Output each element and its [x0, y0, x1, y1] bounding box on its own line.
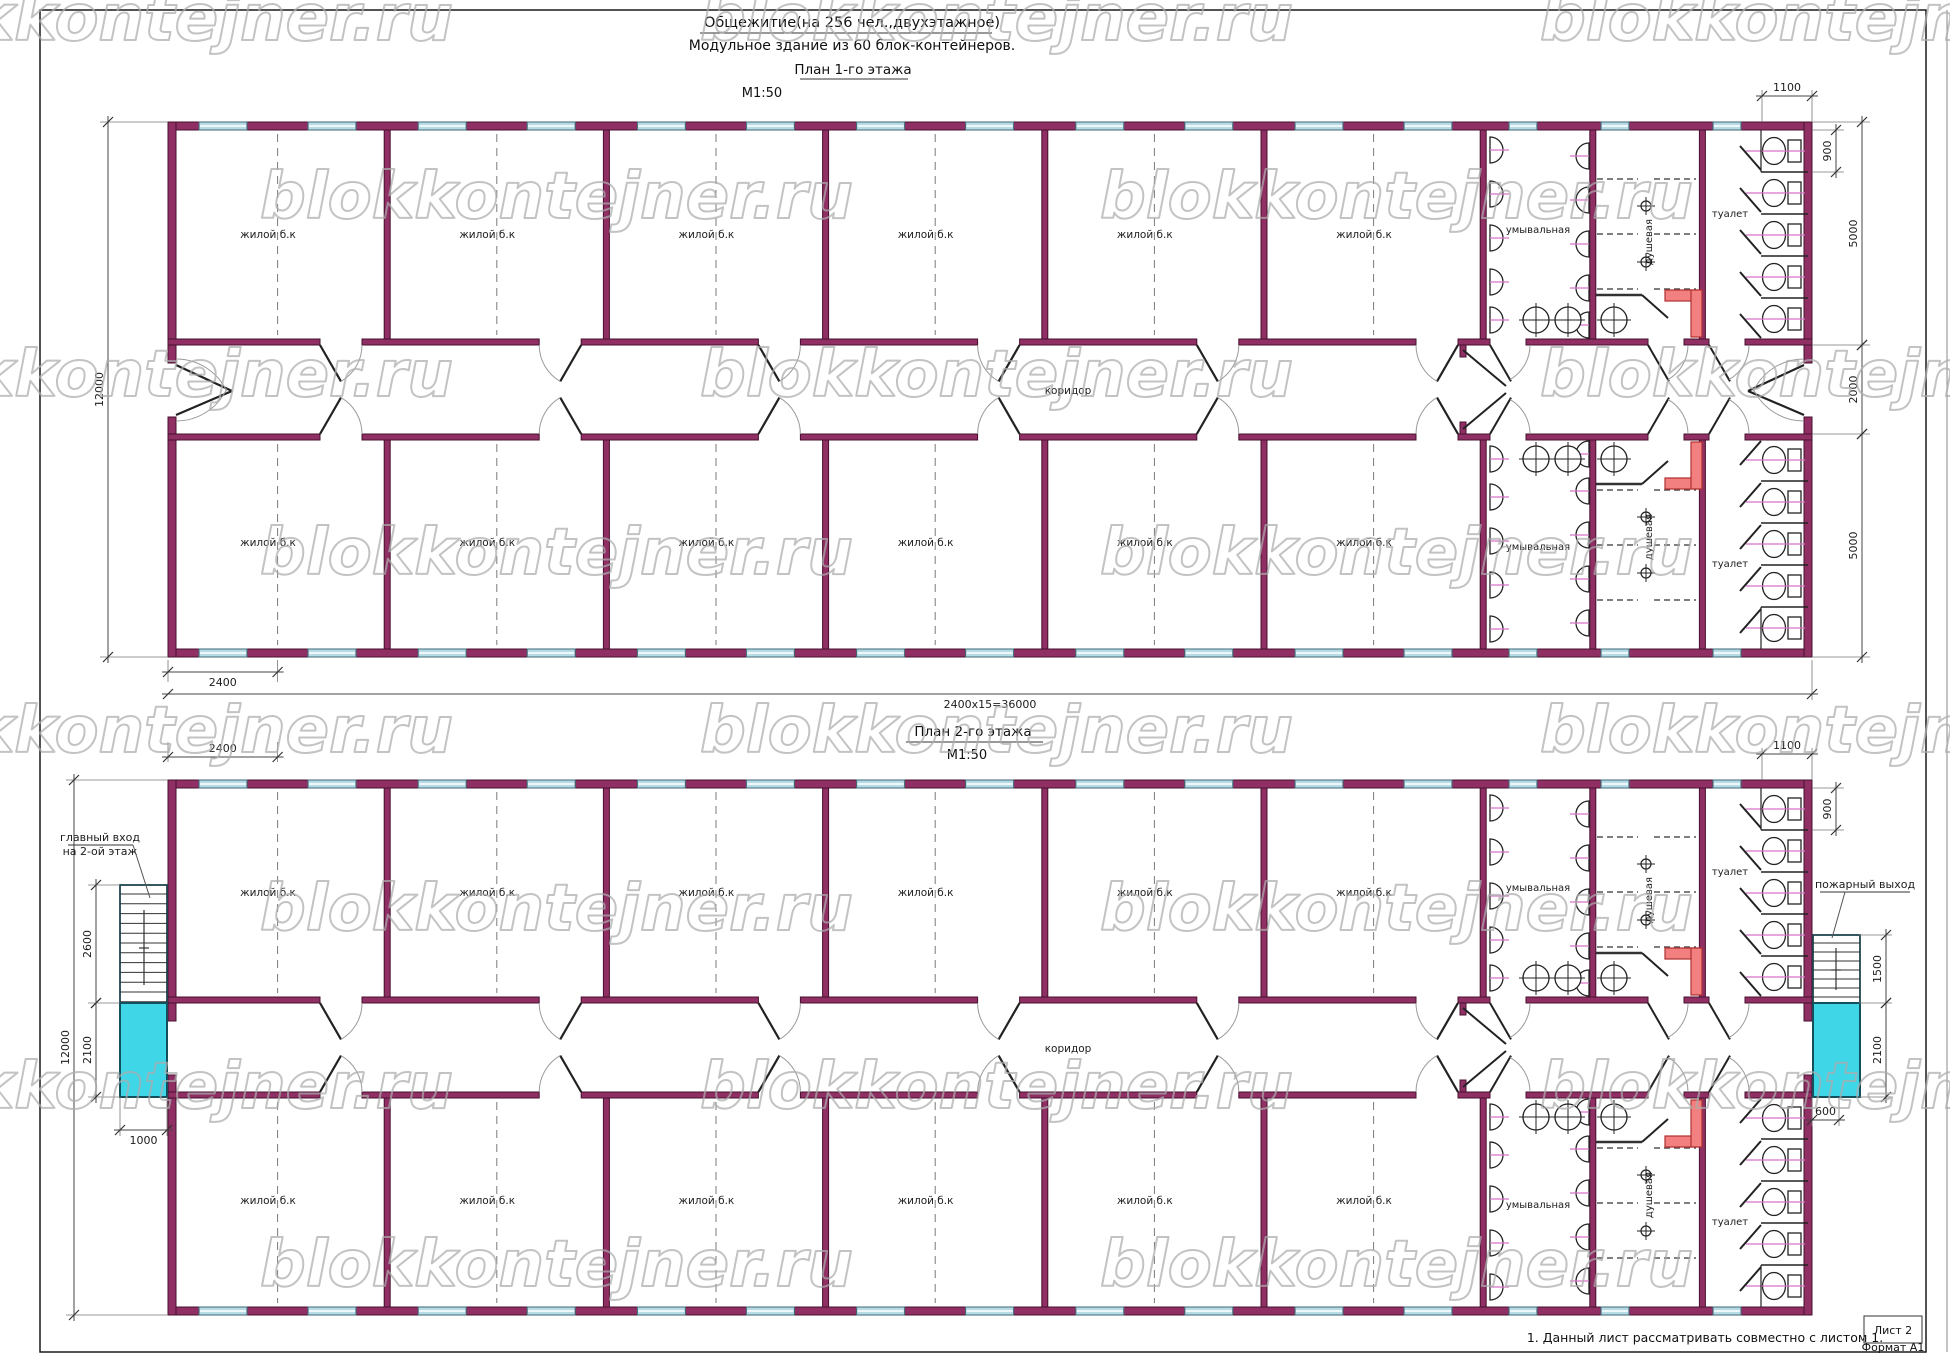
door-leaf: [1197, 1003, 1218, 1039]
door-arc: [539, 398, 560, 434]
room-label: жилой б.к: [679, 1195, 735, 1207]
plan1-title: План 1-го этажа: [794, 62, 911, 78]
fire-exit-label: пожарный выход: [1815, 878, 1915, 891]
door-leaf: [758, 1003, 779, 1039]
corridor-wall: [1684, 434, 1709, 440]
room-partition-wall: [1042, 788, 1048, 997]
room-label: жилой б.к: [1117, 1195, 1173, 1207]
door-arc: [1729, 1003, 1749, 1038]
door-arc: [1416, 345, 1437, 381]
corridor-wall: [1458, 434, 1490, 440]
room-partition-wall: [1042, 130, 1048, 339]
corridor-wall: [1020, 434, 1197, 440]
door-leaf: [1642, 461, 1668, 484]
shower-label: душевая: [1644, 1172, 1655, 1218]
exterior-wall-right: [1804, 780, 1812, 1021]
room-label: жилой б.к: [1336, 1195, 1392, 1207]
stall-door-leaf: [1740, 230, 1761, 254]
door-arc: [539, 1056, 560, 1092]
corridor-wall: [1526, 997, 1648, 1003]
leader-line: [1832, 892, 1845, 938]
stall-door-leaf: [1740, 525, 1761, 549]
watermark-text: blokkontejner.ru: [1100, 872, 1693, 946]
door-leaf: [1709, 1003, 1730, 1039]
watermark-text: blokkontejner.ru: [1540, 338, 1950, 412]
stall-door-leaf: [1740, 314, 1761, 338]
watermark-text: blokkontejner.ru: [260, 872, 853, 946]
door-leaf: [1463, 1008, 1506, 1044]
watermark-text: blokkontejner.ru: [1100, 516, 1693, 590]
stall-door-leaf: [1740, 483, 1761, 507]
corridor-wall: [1684, 997, 1709, 1003]
corridor-wall: [800, 434, 977, 440]
watermark-text: blokkontejner.ru: [260, 160, 853, 234]
door-arc: [779, 1003, 800, 1039]
room-label: жилой б.к: [898, 1195, 954, 1207]
door-arc: [1416, 1056, 1437, 1092]
stall-door-leaf: [1740, 609, 1761, 633]
stall-door-leaf: [1740, 804, 1761, 828]
main-entrance-label: главный вход: [60, 831, 140, 844]
corridor-wall: [1745, 997, 1812, 1003]
room-partition-wall: [1042, 440, 1048, 649]
corridor-wall: [1458, 339, 1490, 345]
corridor-wall: [168, 434, 320, 440]
door-arc: [1668, 1003, 1688, 1038]
corridor-wall: [1458, 997, 1490, 1003]
corridor-wall: [800, 997, 977, 1003]
door-leaf: [1463, 1051, 1506, 1087]
watermark-text: blokkontejner.ru: [700, 338, 1293, 412]
watermark-text: blokkontejner.ru: [0, 1050, 453, 1124]
door-leaf: [560, 398, 581, 434]
dimension-label: 900: [1821, 799, 1834, 820]
watermark-text: blokkontejner.ru: [260, 1228, 853, 1302]
exterior-wall-left: [168, 417, 176, 657]
door-leaf: [560, 345, 581, 381]
watermark-text: blokkontejner.ru: [700, 1050, 1293, 1124]
watermark-text: blokkontejner.ru: [1540, 694, 1950, 768]
door-arc: [341, 1003, 362, 1039]
stall-door-leaf: [1740, 567, 1761, 591]
stall-door-leaf: [1740, 888, 1761, 912]
watermark-text: blokkontejner.ru: [260, 516, 853, 590]
exterior-wall-right: [1804, 417, 1812, 657]
door-leaf: [1463, 350, 1506, 386]
toilet-label: туалет: [1712, 559, 1748, 570]
sheet-format: Формат А1: [1862, 1341, 1925, 1354]
dimension-label: 2600: [81, 930, 94, 958]
door-arc: [1416, 1003, 1437, 1039]
room-label: жилой б.к: [898, 537, 954, 549]
stall-door-leaf: [1740, 1141, 1761, 1165]
room-label: жилой б.к: [898, 229, 954, 241]
door-leaf: [320, 1003, 341, 1039]
door-arc: [1510, 399, 1530, 434]
watermark-text: blokkontejner.ru: [1540, 0, 1950, 56]
door-arc: [1218, 1003, 1239, 1039]
dimension-label: 900: [1821, 141, 1834, 162]
door-leaf: [999, 1003, 1020, 1039]
exterior-wall-left: [168, 122, 176, 363]
stall-door-leaf: [1740, 146, 1761, 170]
room-label: жилой б.к: [898, 887, 954, 899]
watermark-text: blokkontejner.ru: [0, 694, 453, 768]
door-leaf: [1437, 345, 1458, 381]
room-label: жилой б.к: [459, 1195, 515, 1207]
corridor-wall: [1239, 997, 1416, 1003]
watermark-text: blokkontejner.ru: [700, 0, 1293, 56]
corridor-wall: [1745, 434, 1812, 440]
sheet-note: 1. Данный лист рассматривать совместно с…: [1527, 1330, 1883, 1345]
sheet-number: Лист 2: [1874, 1324, 1912, 1337]
watermark-text: blokkontejner.ru: [1540, 1050, 1950, 1124]
room-partition-wall: [1042, 1098, 1048, 1307]
door-leaf: [1463, 393, 1506, 429]
stall-door-leaf: [1740, 441, 1761, 465]
door-arc: [978, 1003, 999, 1039]
red-wall-panel: [1691, 948, 1702, 995]
washroom-label: умывальная: [1506, 1200, 1570, 1211]
red-wall-panel: [1691, 442, 1702, 489]
door-leaf: [1642, 953, 1668, 976]
watermark-text: blokkontejner.ru: [700, 694, 1293, 768]
dimension-label: 1100: [1773, 81, 1801, 94]
stall-door-leaf: [1740, 1183, 1761, 1207]
corridor-wall: [362, 434, 539, 440]
exterior-wall-left: [168, 780, 176, 1021]
corridor-wall: [1239, 434, 1416, 440]
stall-door-leaf: [1740, 930, 1761, 954]
stall-door-leaf: [1740, 1267, 1761, 1291]
corridor-wall: [362, 997, 539, 1003]
door-leaf: [1642, 295, 1668, 318]
stall-door-leaf: [1740, 1225, 1761, 1249]
exterior-wall-right: [1804, 122, 1812, 363]
main-entrance-label: на 2-ой этаж: [63, 845, 138, 858]
toilet-label: туалет: [1712, 209, 1748, 220]
corridor-wall: [1020, 997, 1197, 1003]
door-leaf: [1437, 1056, 1458, 1092]
door-arc: [1416, 398, 1437, 434]
plan1-scale: М1:50: [742, 86, 782, 101]
corridor-wall: [581, 997, 758, 1003]
corridor-wall: [1458, 1092, 1490, 1098]
door-arc: [539, 345, 560, 381]
watermark-text: blokkontejner.ru: [1100, 160, 1693, 234]
stall-door-leaf: [1740, 972, 1761, 996]
toilet-label: туалет: [1712, 867, 1748, 878]
stall-door-leaf: [1740, 272, 1761, 296]
red-wall-panel: [1691, 290, 1702, 337]
dimension-label: 5000: [1847, 532, 1860, 560]
watermark-text: blokkontejner.ru: [0, 338, 453, 412]
dimension-label: 5000: [1847, 220, 1860, 248]
door-leaf: [1648, 1003, 1669, 1039]
corridor-wall: [168, 997, 320, 1003]
room-label: жилой б.к: [240, 1195, 296, 1207]
dimension-label: 2400: [209, 676, 237, 689]
door-arc: [1510, 1003, 1530, 1038]
door-arc: [539, 1003, 560, 1039]
door-arc: [1510, 1057, 1530, 1092]
door-arc: [1510, 345, 1530, 380]
corridor-wall: [581, 434, 758, 440]
door-leaf: [1437, 398, 1458, 434]
corridor-wall: [1526, 434, 1648, 440]
toilet-label: туалет: [1712, 1217, 1748, 1228]
drawing-sheet: жилой б.кжилой б.кжилой б.кжилой б.кжило…: [0, 0, 1950, 1360]
watermark-text: blokkontejner.ru: [1100, 1228, 1693, 1302]
watermark-text: blokkontejner.ru: [0, 0, 453, 56]
door-leaf: [1437, 1003, 1458, 1039]
dimension-label: 1000: [130, 1134, 158, 1147]
door-leaf: [560, 1003, 581, 1039]
door-leaf: [560, 1056, 581, 1092]
dimension-label: 1500: [1871, 955, 1884, 983]
